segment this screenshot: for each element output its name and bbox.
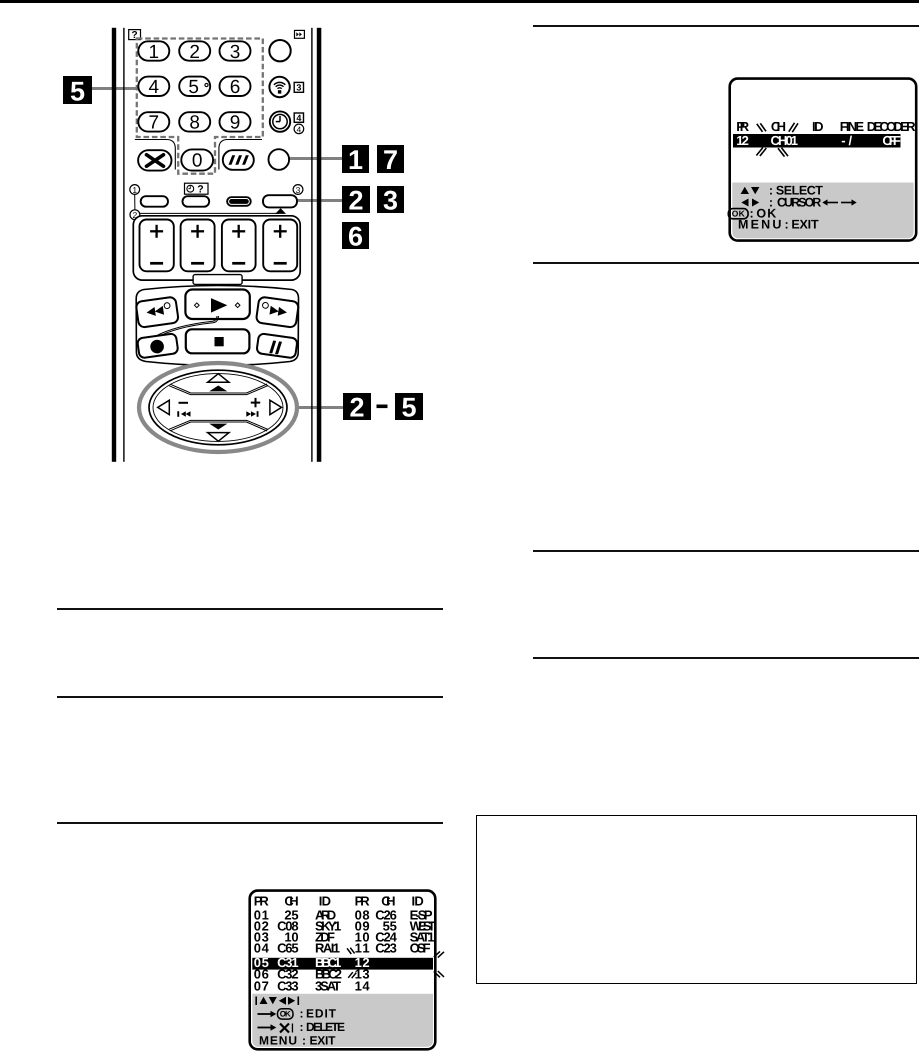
svg-text:ID: ID: [812, 119, 824, 134]
svg-text:0: 0: [192, 151, 203, 172]
svg-text:ID: ID: [412, 894, 424, 909]
svg-text:3: 3: [383, 186, 398, 216]
svg-text:CH: CH: [771, 119, 786, 134]
svg-text:2: 2: [189, 42, 200, 63]
svg-text:1: 1: [348, 145, 363, 175]
svg-text::: :: [785, 218, 789, 232]
svg-text:04: 04: [254, 940, 270, 955]
svg-text:ID: ID: [319, 894, 331, 909]
svg-text:CH01: CH01: [771, 133, 799, 148]
svg-text:PR: PR: [736, 119, 750, 134]
svg-text:2: 2: [348, 186, 363, 216]
svg-text:4: 4: [296, 113, 301, 123]
svg-text:3: 3: [230, 42, 241, 63]
svg-text:?: ?: [197, 184, 203, 196]
svg-text:7: 7: [383, 145, 398, 175]
svg-text:3: 3: [296, 185, 301, 195]
svg-text:C33: C33: [277, 978, 299, 993]
svg-text:EXIT: EXIT: [791, 218, 819, 232]
svg-text::: :: [302, 1033, 306, 1047]
svg-text:6: 6: [348, 222, 363, 252]
svg-text:5: 5: [401, 393, 416, 423]
svg-text:C65: C65: [277, 940, 299, 955]
svg-text:OFF: OFF: [882, 133, 900, 148]
svg-text:DELETE: DELETE: [306, 1020, 345, 1034]
svg-text:2: 2: [349, 393, 364, 423]
svg-text:DECODER: DECODER: [867, 119, 916, 134]
svg-text:CURSOR: CURSOR: [777, 196, 821, 210]
svg-text:7: 7: [149, 113, 160, 134]
svg-text:CH: CH: [284, 894, 298, 909]
svg-text:MENU: MENU: [259, 1033, 297, 1047]
svg-text:PR: PR: [355, 894, 371, 909]
svg-text:12: 12: [736, 133, 749, 148]
svg-text:9: 9: [230, 113, 241, 134]
svg-text:14: 14: [355, 978, 371, 993]
svg-text:3SAT: 3SAT: [315, 978, 341, 993]
svg-text:3: 3: [296, 83, 301, 93]
svg-text:07: 07: [254, 978, 269, 993]
svg-text::: :: [300, 1007, 304, 1021]
svg-text:6: 6: [230, 77, 241, 98]
svg-text:8: 8: [189, 113, 200, 134]
svg-text:CH: CH: [381, 894, 395, 909]
svg-text::: :: [300, 1020, 304, 1034]
svg-text:4: 4: [297, 124, 302, 134]
svg-text:C23: C23: [375, 940, 397, 955]
svg-text:1: 1: [132, 185, 137, 195]
svg-text:EXIT: EXIT: [310, 1033, 337, 1047]
svg-text:RAI1: RAI1: [315, 940, 340, 955]
svg-text:11: 11: [355, 940, 370, 955]
svg-text:5: 5: [70, 76, 85, 106]
svg-text:FINE: FINE: [840, 119, 865, 134]
svg-text:1: 1: [149, 42, 160, 63]
svg-text:4: 4: [149, 77, 160, 98]
svg-text:OK: OK: [280, 1010, 291, 1019]
svg-text:OSF: OSF: [410, 940, 431, 955]
svg-text:EDIT: EDIT: [306, 1007, 337, 1021]
svg-text:PR: PR: [254, 894, 270, 909]
svg-text:5: 5: [188, 77, 199, 98]
